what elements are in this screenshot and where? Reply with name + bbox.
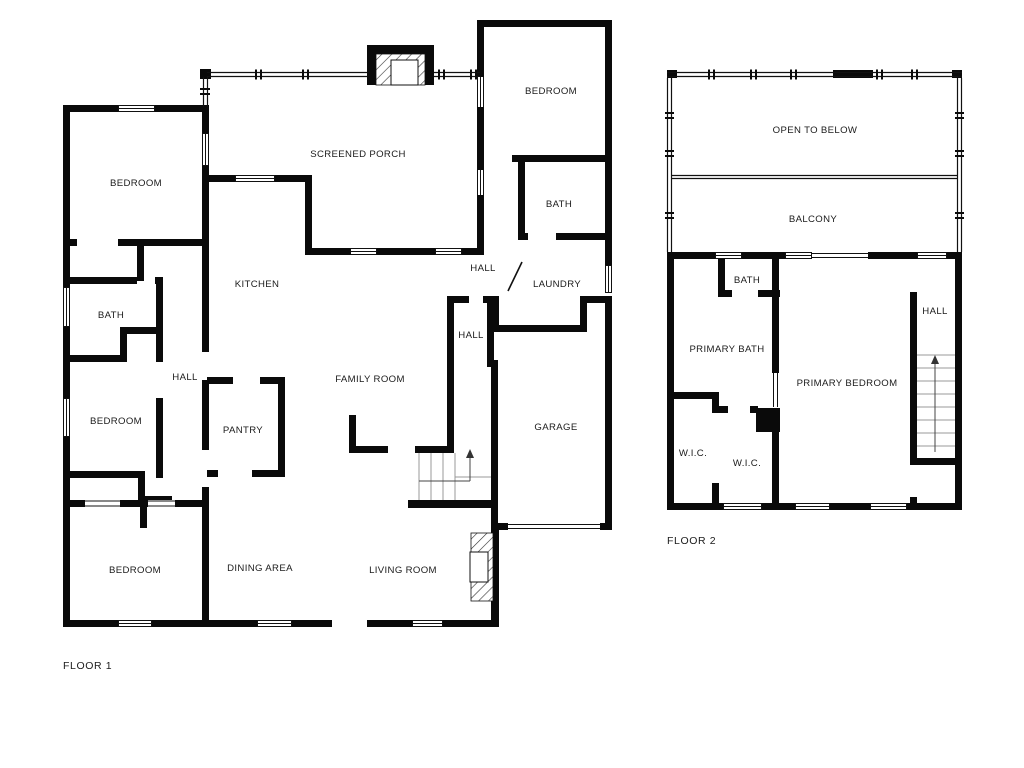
living-room-fireplace (470, 533, 493, 601)
room-label-kitchen: KITCHEN (235, 279, 280, 290)
room-label-hall-left: HALL (172, 372, 198, 383)
room-label-hall-middle: HALL (458, 330, 484, 341)
room-label-primary-bedroom: PRIMARY BEDROOM (797, 378, 898, 389)
room-label-bedroom-top-left: BEDROOM (110, 178, 162, 189)
room-label-bath-right: BATH (546, 199, 572, 210)
room-label-bedroom-bottom-left: BEDROOM (109, 565, 161, 576)
room-label-wic-middle: W.I.C. (733, 458, 761, 469)
floor2-title: FLOOR 2 (667, 535, 716, 547)
room-label-balcony: BALCONY (789, 214, 838, 225)
room-label-bath-2: BATH (734, 275, 760, 286)
floor1-title: FLOOR 1 (63, 660, 112, 672)
room-label-screened-porch: SCREENED PORCH (310, 149, 406, 160)
room-label-family-room: FAMILY ROOM (335, 374, 405, 385)
room-label-pantry: PANTRY (223, 425, 263, 436)
room-label-primary-bath: PRIMARY BATH (689, 344, 764, 355)
room-label-bath-left: BATH (98, 310, 124, 321)
room-label-hall-upper: HALL (470, 263, 496, 274)
room-label-laundry: LAUNDRY (533, 279, 581, 290)
room-label-hall-2: HALL (922, 306, 948, 317)
room-label-garage: GARAGE (534, 422, 577, 433)
floor-plan-canvas: BEDROOMSCREENED PORCHBEDROOMBATHHALLLAUN… (0, 0, 1024, 768)
room-label-bedroom-top-right: BEDROOM (525, 86, 577, 97)
floor-plan-page: BEDROOMSCREENED PORCHBEDROOMBATHHALLLAUN… (0, 0, 1024, 768)
porch-fireplace (367, 45, 434, 85)
room-label-wic-left: W.I.C. (679, 448, 707, 459)
room-label-open-to-below: OPEN TO BELOW (773, 125, 858, 136)
room-label-dining-area: DINING AREA (227, 563, 293, 574)
room-label-living-room: LIVING ROOM (369, 565, 437, 576)
garage-door (508, 523, 600, 530)
room-label-bedroom-mid-left: BEDROOM (90, 416, 142, 427)
